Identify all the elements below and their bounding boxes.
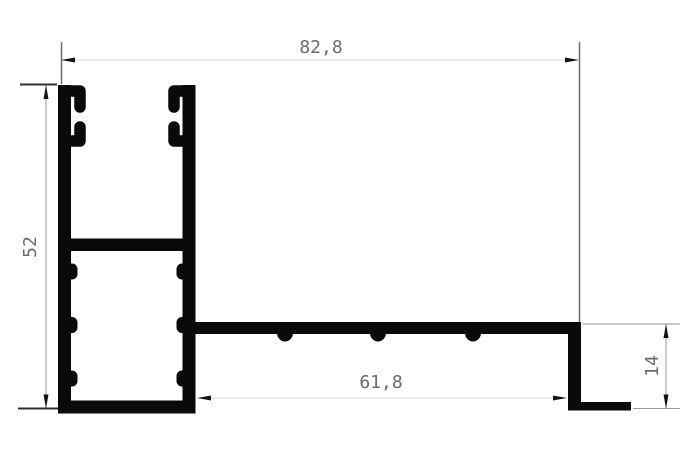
dimension-labels: 82,8 52 61,8 14 xyxy=(20,37,663,393)
arrow-bottom-width-left xyxy=(197,396,211,401)
technical-drawing-canvas: 82,8 52 61,8 14 xyxy=(0,0,700,450)
profile-inner-bump xyxy=(66,264,78,280)
profile-crossbar xyxy=(58,239,196,252)
arrow-left-height-bottom xyxy=(44,395,49,409)
profile-inner-bump xyxy=(66,317,78,333)
dimension-lines-light xyxy=(62,60,578,398)
arrow-right-height-top xyxy=(664,324,669,338)
profile-right-leg xyxy=(568,322,581,411)
profile-gasket-hooks xyxy=(65,91,190,141)
profile-inner-bump xyxy=(66,371,78,387)
profile-arm-lug xyxy=(277,325,293,342)
extension-lines-dark xyxy=(62,42,580,322)
profile-body xyxy=(58,85,631,414)
dim-label-top-width: 82,8 xyxy=(299,37,342,58)
arrow-top-width-left xyxy=(61,58,75,63)
arrow-left-height-top xyxy=(44,85,49,99)
dim-label-left-height: 52 xyxy=(20,236,41,258)
profile-right-foot xyxy=(568,402,631,411)
arrow-bottom-width-right xyxy=(553,396,567,401)
dim-label-right-height: 14 xyxy=(642,355,663,377)
profile-arm-lug xyxy=(370,325,386,342)
profile-inner-bump xyxy=(177,317,189,333)
profile-inner-bump xyxy=(177,264,189,280)
arrow-right-height-bottom xyxy=(664,395,669,409)
profile-inner-bump xyxy=(177,371,189,387)
dim-label-bottom-width: 61,8 xyxy=(359,372,402,393)
arrow-top-width-right xyxy=(565,58,579,63)
profile-bottom-wall xyxy=(58,401,196,414)
profile-cross-section-drawing: 82,8 52 61,8 14 xyxy=(0,0,700,450)
profile-arm-lug xyxy=(465,325,481,342)
